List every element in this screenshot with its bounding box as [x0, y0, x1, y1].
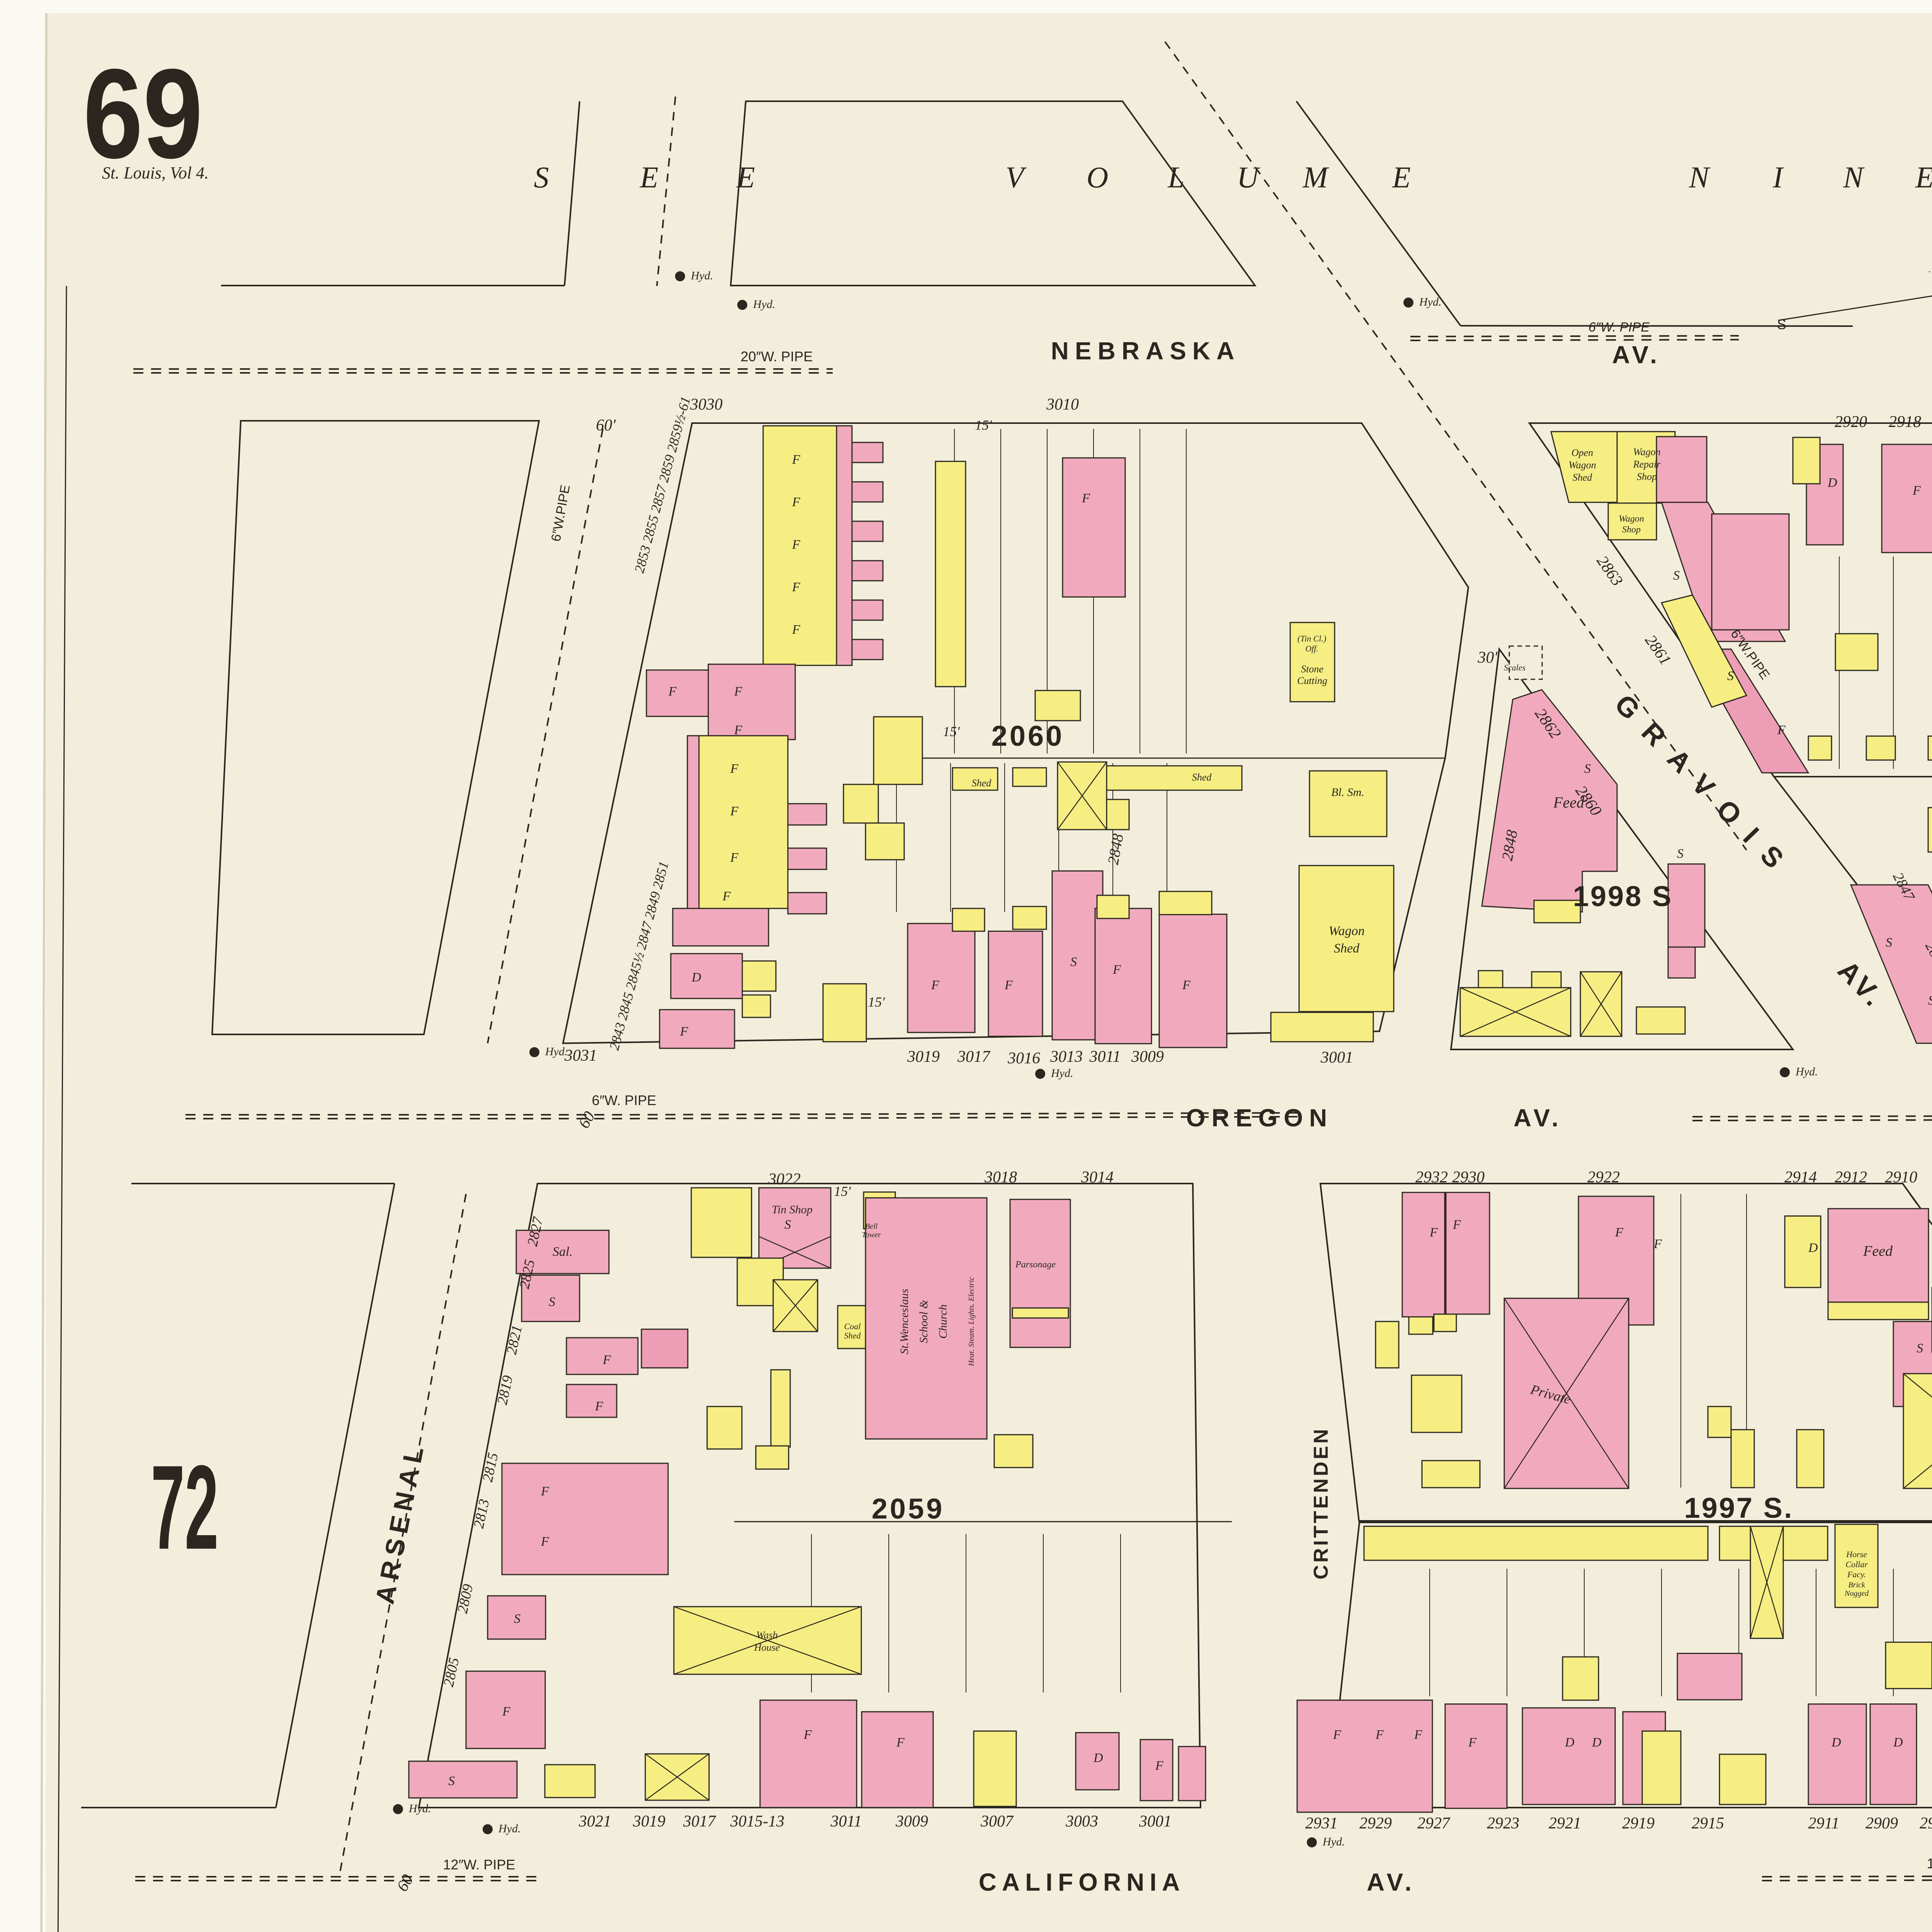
svg-text:3009: 3009	[1131, 1048, 1164, 1066]
svg-text:3003: 3003	[1065, 1813, 1098, 1830]
svg-text:F: F	[730, 762, 739, 776]
svg-text:NEBRASKA: NEBRASKA	[1051, 337, 1241, 365]
svg-text:F: F	[931, 978, 940, 992]
svg-text:D: D	[1831, 1735, 1841, 1750]
svg-text:F: F	[803, 1728, 812, 1742]
svg-text:2907: 2907	[1920, 1815, 1932, 1832]
svg-text:F: F	[1333, 1728, 1342, 1742]
svg-text:F: F	[730, 850, 739, 865]
svg-text:N: N	[1689, 160, 1711, 194]
svg-text:F: F	[734, 684, 743, 699]
svg-text:D: D	[691, 970, 701, 985]
svg-text:Feed: Feed	[1863, 1243, 1893, 1259]
svg-text:M: M	[1303, 160, 1330, 194]
svg-text:S: S	[1677, 847, 1684, 861]
svg-text:2059: 2059	[872, 1493, 945, 1525]
svg-text:F: F	[1452, 1218, 1461, 1232]
svg-text:Heat. Steam. Lights. Electric: Heat. Steam. Lights. Electric	[967, 1277, 976, 1366]
svg-text:Wagon: Wagon	[1568, 459, 1596, 471]
svg-text:F: F	[1615, 1225, 1624, 1240]
svg-text:F: F	[541, 1484, 549, 1498]
svg-text:E: E	[1392, 160, 1411, 194]
svg-text:St. Louis, Vol 4.: St. Louis, Vol 4.	[102, 163, 209, 182]
svg-text:3022: 3022	[768, 1170, 801, 1188]
svg-text:CRITTENDEN: CRITTENDEN	[1310, 1427, 1332, 1579]
svg-text:E: E	[639, 160, 658, 194]
svg-text:F: F	[730, 804, 739, 818]
svg-text:F: F	[792, 580, 801, 594]
svg-text:3007: 3007	[980, 1813, 1014, 1830]
svg-text:F: F	[792, 452, 801, 467]
svg-text:1997 S.: 1997 S.	[1684, 1492, 1793, 1524]
svg-text:3018: 3018	[984, 1168, 1017, 1186]
svg-text:D: D	[1827, 476, 1837, 490]
svg-text:12″W. PIPE: 12″W. PIPE	[443, 1857, 515, 1872]
svg-text:2922: 2922	[1587, 1168, 1620, 1186]
svg-text:Cutting: Cutting	[1297, 675, 1327, 686]
svg-text:F: F	[896, 1735, 905, 1750]
svg-text:F: F	[1082, 491, 1090, 505]
svg-text:S: S	[1777, 316, 1786, 332]
svg-text:F: F	[680, 1024, 689, 1039]
svg-text:House: House	[754, 1642, 780, 1653]
svg-text:S: S	[1584, 762, 1591, 776]
svg-text:Open: Open	[1571, 447, 1593, 458]
svg-text:AV.: AV.	[1612, 341, 1661, 369]
svg-text:F: F	[792, 495, 801, 509]
svg-text:Shed: Shed	[1573, 472, 1593, 483]
svg-text:2918: 2918	[1889, 413, 1921, 431]
svg-text:Scales: Scales	[1504, 663, 1526, 672]
svg-text:Bl. Sm.: Bl. Sm.	[1331, 786, 1364, 799]
svg-text:F: F	[1414, 1728, 1423, 1742]
svg-text:Sal.: Sal.	[553, 1245, 573, 1259]
svg-text:Collar: Collar	[1845, 1560, 1868, 1569]
svg-text:3013: 3013	[1050, 1048, 1083, 1066]
svg-text:F: F	[1777, 723, 1786, 737]
svg-text:Hyd.: Hyd.	[690, 269, 713, 282]
svg-text:15′: 15′	[868, 994, 885, 1010]
svg-text:3009: 3009	[895, 1813, 928, 1830]
svg-text:AV.: AV.	[1367, 1868, 1415, 1896]
svg-text:S: S	[514, 1612, 520, 1626]
svg-text:6″W. PIPE: 6″W. PIPE	[1588, 320, 1650, 335]
svg-text:20″W. PIPE: 20″W. PIPE	[741, 349, 813, 364]
svg-text:2923: 2923	[1487, 1815, 1519, 1832]
svg-text:1998 S: 1998 S	[1573, 880, 1673, 912]
svg-text:F: F	[668, 684, 677, 699]
svg-text:2927: 2927	[1417, 1815, 1451, 1832]
svg-text:Hyd.: Hyd.	[753, 298, 775, 311]
svg-text:AV.: AV.	[1514, 1104, 1562, 1132]
svg-text:60′: 60′	[596, 417, 616, 434]
svg-text:Repair: Repair	[1633, 459, 1661, 470]
svg-text:F: F	[1155, 1759, 1164, 1773]
svg-text:Off.: Off.	[1305, 644, 1318, 653]
svg-text:2932: 2932	[1415, 1168, 1448, 1186]
svg-text:F: F	[1468, 1735, 1477, 1750]
svg-text:S: S	[1917, 1341, 1923, 1355]
svg-text:D: D	[1808, 1241, 1818, 1255]
svg-text:6″W. PIPE: 6″W. PIPE	[592, 1092, 656, 1108]
svg-text:S: S	[1070, 955, 1077, 969]
svg-text:L: L	[1167, 160, 1184, 194]
svg-text:2909: 2909	[1866, 1815, 1898, 1832]
svg-text:Shop: Shop	[1637, 471, 1657, 482]
svg-text:F: F	[502, 1704, 511, 1719]
svg-text:Hyd.: Hyd.	[545, 1045, 567, 1058]
svg-text:D: D	[1592, 1735, 1602, 1750]
svg-text:Bell: Bell	[865, 1222, 878, 1231]
svg-text:2060: 2060	[992, 720, 1065, 752]
svg-text:Shed: Shed	[972, 777, 992, 789]
svg-text:3011: 3011	[830, 1813, 862, 1830]
svg-text:3011: 3011	[1089, 1048, 1121, 1066]
svg-text:S: S	[784, 1218, 791, 1232]
svg-text:Church: Church	[937, 1304, 949, 1339]
svg-text:F: F	[1429, 1225, 1438, 1240]
svg-text:Shed: Shed	[1334, 941, 1360, 956]
svg-text:Stone: Stone	[1301, 663, 1323, 675]
svg-text:3019: 3019	[633, 1813, 665, 1830]
svg-text:S: S	[534, 160, 549, 194]
svg-text:2929: 2929	[1359, 1815, 1392, 1832]
svg-text:S: S	[448, 1774, 455, 1788]
svg-text:3015-13: 3015-13	[730, 1813, 784, 1830]
svg-text:Hyd.: Hyd.	[1051, 1067, 1073, 1080]
svg-text:2911: 2911	[1808, 1815, 1840, 1832]
svg-text:2930: 2930	[1452, 1168, 1485, 1186]
svg-text:F: F	[541, 1534, 549, 1549]
svg-text:F: F	[722, 889, 731, 903]
svg-text:F: F	[792, 622, 801, 637]
svg-text:3017: 3017	[683, 1813, 716, 1830]
svg-text:S: S	[1886, 935, 1892, 950]
svg-text:3031: 3031	[564, 1047, 597, 1065]
svg-text:Horse: Horse	[1846, 1549, 1867, 1559]
svg-text:O: O	[1087, 160, 1108, 194]
svg-text:2914: 2914	[1784, 1168, 1817, 1186]
svg-text:D: D	[1093, 1751, 1103, 1765]
svg-text:Shop: Shop	[1622, 525, 1641, 535]
svg-text:2921: 2921	[1549, 1815, 1581, 1832]
svg-text:S: S	[1673, 568, 1680, 583]
svg-text:Nogged: Nogged	[1844, 1589, 1869, 1598]
svg-text:D: D	[1565, 1735, 1575, 1750]
svg-text:2915: 2915	[1692, 1815, 1724, 1832]
svg-text:Coal: Coal	[844, 1321, 861, 1331]
svg-text:Facy.: Facy.	[1847, 1570, 1866, 1579]
svg-text:15′: 15′	[975, 417, 992, 433]
svg-text:F: F	[734, 723, 743, 737]
svg-text:N: N	[1843, 160, 1865, 194]
svg-text:3017: 3017	[957, 1048, 991, 1066]
svg-text:Shed: Shed	[844, 1331, 861, 1340]
svg-text:3010: 3010	[1046, 396, 1079, 413]
svg-text:Tower: Tower	[862, 1231, 881, 1239]
svg-text:F: F	[1004, 978, 1013, 992]
svg-text:E: E	[1915, 160, 1932, 194]
svg-text:2920: 2920	[1835, 413, 1867, 431]
svg-text:D: D	[1893, 1735, 1903, 1750]
svg-text:12″W. PIPE: 12″W. PIPE	[1927, 1855, 1932, 1871]
svg-text:2912: 2912	[1835, 1168, 1867, 1186]
svg-text:St.Wenceslaus: St.Wenceslaus	[898, 1289, 911, 1354]
svg-text:F: F	[1375, 1728, 1384, 1742]
svg-text:30′: 30′	[1477, 649, 1498, 667]
svg-text:2919: 2919	[1622, 1815, 1655, 1832]
svg-text:Hyd.: Hyd.	[1795, 1065, 1818, 1078]
svg-text:3030: 3030	[690, 396, 723, 413]
svg-text:School &: School &	[917, 1299, 930, 1343]
svg-text:F: F	[1182, 978, 1191, 992]
svg-text:S: S	[549, 1295, 555, 1309]
svg-text:V: V	[1005, 160, 1027, 194]
svg-text:U: U	[1237, 160, 1260, 194]
svg-text:F: F	[1912, 483, 1921, 498]
svg-text:S: S	[1928, 993, 1932, 1008]
svg-text:Shed: Shed	[1192, 772, 1212, 783]
svg-text:Parsonage: Parsonage	[1015, 1260, 1056, 1270]
svg-text:3001: 3001	[1320, 1049, 1353, 1066]
svg-text:(Tin Cl.): (Tin Cl.)	[1298, 634, 1327, 643]
svg-text:Brick: Brick	[1848, 1581, 1865, 1589]
svg-text:Hyd.: Hyd.	[498, 1822, 520, 1835]
svg-text:F: F	[1112, 963, 1121, 977]
svg-text:Hyd.: Hyd.	[1419, 296, 1441, 308]
svg-text:Wagon: Wagon	[1619, 514, 1644, 524]
svg-text:2931: 2931	[1305, 1815, 1338, 1832]
svg-text:3016: 3016	[1007, 1049, 1040, 1067]
svg-text:3014: 3014	[1081, 1168, 1114, 1186]
svg-text:OREGON: OREGON	[1186, 1104, 1333, 1132]
svg-text:F: F	[602, 1353, 611, 1367]
svg-text:15′: 15′	[943, 724, 960, 739]
svg-text:Wash: Wash	[756, 1629, 777, 1641]
svg-text:F: F	[792, 537, 801, 552]
svg-text:S: S	[1727, 669, 1734, 683]
svg-text:3021: 3021	[578, 1813, 611, 1830]
svg-text:Wagon: Wagon	[1633, 446, 1660, 457]
svg-text:Wagon: Wagon	[1328, 924, 1364, 938]
svg-text:Tin Shop: Tin Shop	[772, 1203, 813, 1216]
svg-text:3001: 3001	[1139, 1813, 1172, 1830]
svg-text:Hyd.: Hyd.	[408, 1802, 431, 1815]
svg-text:I: I	[1772, 160, 1784, 194]
svg-text:3019: 3019	[907, 1048, 940, 1066]
svg-text:F: F	[1653, 1237, 1662, 1251]
svg-text:15′: 15′	[834, 1184, 851, 1199]
svg-text:2910: 2910	[1885, 1168, 1917, 1186]
svg-text:Hyd.: Hyd.	[1322, 1835, 1345, 1848]
svg-text:72: 72	[151, 1440, 219, 1574]
svg-text:CALIFORNIA: CALIFORNIA	[979, 1868, 1185, 1896]
svg-text:F: F	[595, 1399, 604, 1413]
